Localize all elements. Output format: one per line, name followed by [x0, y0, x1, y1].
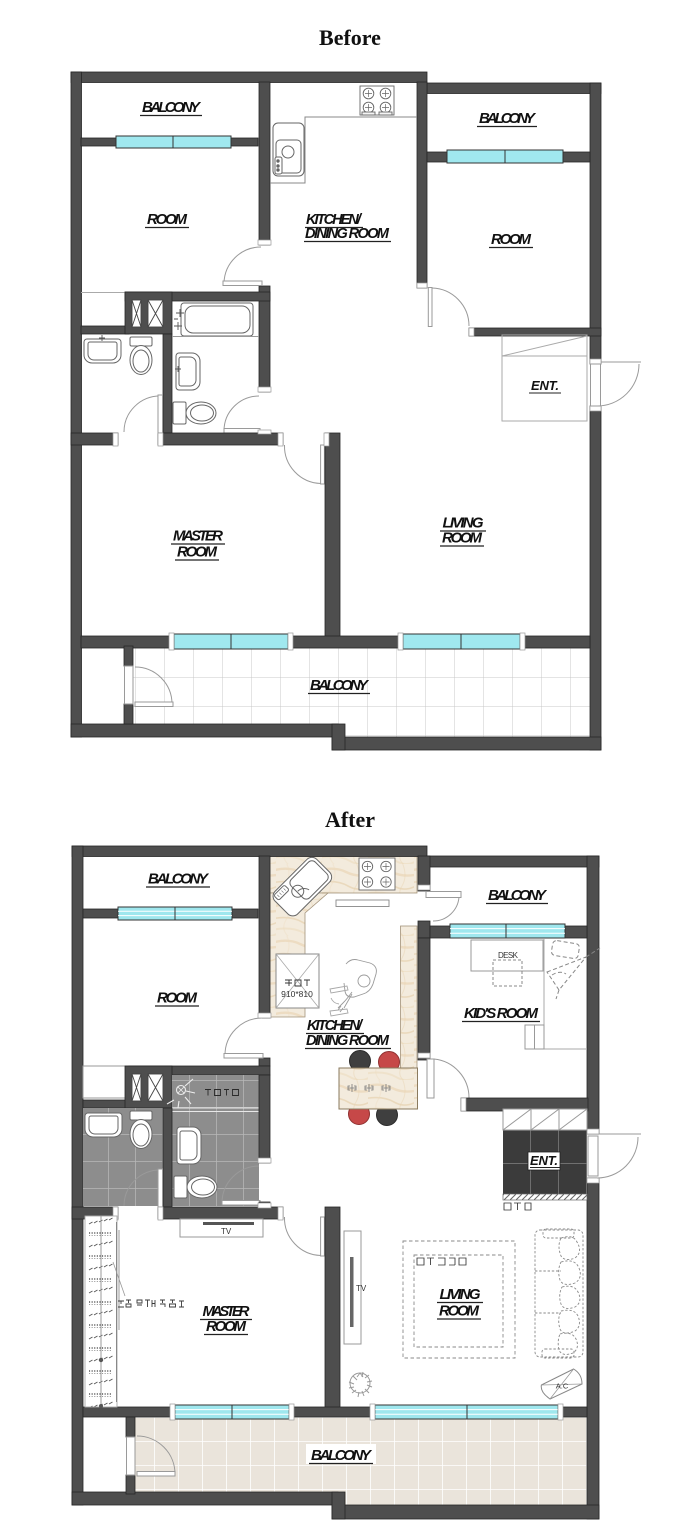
svg-text:ENT.: ENT.: [530, 1153, 558, 1168]
svg-text:ROOM: ROOM: [147, 211, 188, 228]
svg-text:KID'S ROOM: KID'S ROOM: [464, 1005, 539, 1022]
svg-text:BALCONY: BALCONY: [488, 887, 548, 904]
svg-text:Before: Before: [319, 25, 381, 50]
svg-text:BALCONY: BALCONY: [311, 1447, 373, 1464]
svg-text:BALCONY: BALCONY: [479, 110, 537, 127]
svg-text:DINING ROOM: DINING ROOM: [306, 1033, 390, 1049]
svg-text:KITCHEN/: KITCHEN/: [307, 1018, 364, 1034]
svg-text:BALCONY: BALCONY: [148, 871, 210, 888]
svg-text:DINING ROOM: DINING ROOM: [305, 226, 390, 242]
svg-text:ROOM: ROOM: [491, 231, 532, 248]
svg-text:A.C: A.C: [556, 1382, 569, 1391]
svg-text:ROOM: ROOM: [157, 990, 198, 1007]
svg-text:After: After: [325, 807, 375, 832]
svg-text:ROOM: ROOM: [177, 544, 218, 561]
svg-text:MASTER: MASTER: [173, 528, 223, 545]
svg-text:910*810: 910*810: [281, 989, 313, 999]
svg-text:ENT.: ENT.: [531, 378, 559, 393]
svg-text:ROOM: ROOM: [442, 530, 483, 547]
svg-text:ROOM: ROOM: [206, 1318, 247, 1335]
svg-text:BALCONY: BALCONY: [142, 99, 202, 116]
svg-text:TV: TV: [221, 1227, 232, 1236]
svg-text:ROOM: ROOM: [439, 1303, 480, 1320]
svg-text:BALCONY: BALCONY: [310, 677, 370, 694]
svg-text:LIVING: LIVING: [440, 1286, 481, 1303]
svg-text:TV: TV: [356, 1284, 367, 1293]
svg-text:DESK: DESK: [498, 951, 519, 960]
